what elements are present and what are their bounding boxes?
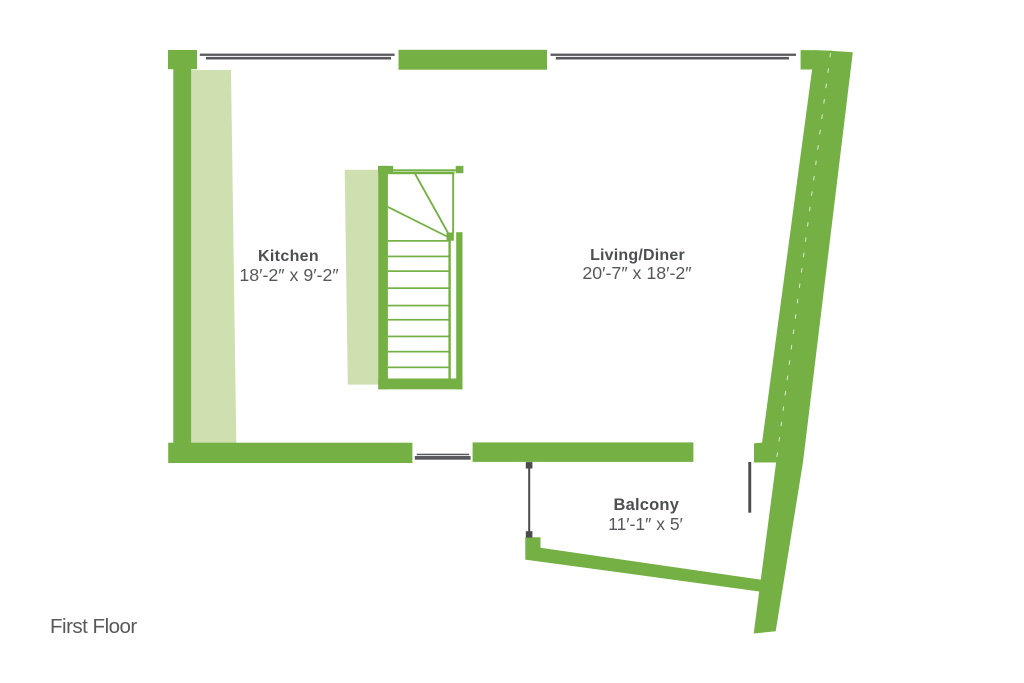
svg-text:Balcony: Balcony bbox=[614, 496, 680, 514]
svg-text:18′-2″ x 9′-2″: 18′-2″ x 9′-2″ bbox=[239, 265, 338, 285]
svg-text:11′-1″ x 5′: 11′-1″ x 5′ bbox=[608, 514, 683, 534]
svg-text:First Floor: First Floor bbox=[50, 615, 137, 638]
svg-text:Kitchen: Kitchen bbox=[258, 248, 319, 265]
svg-text:Living/Diner: Living/Diner bbox=[590, 247, 685, 264]
svg-text:20′-7″ x 18′-2″: 20′-7″ x 18′-2″ bbox=[582, 263, 691, 283]
